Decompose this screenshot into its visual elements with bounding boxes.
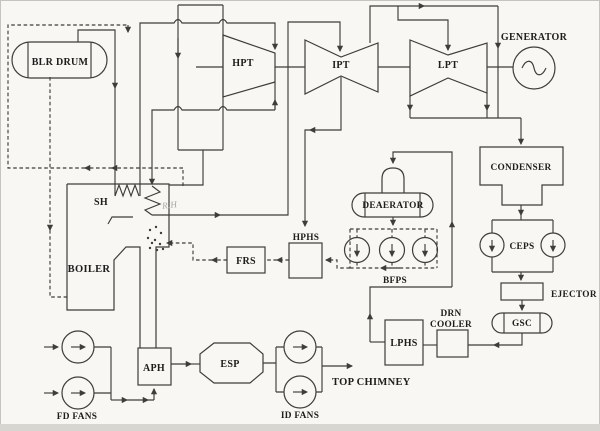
id-fans: ID FANS TOP CHIMNEY bbox=[263, 331, 411, 421]
esp: ESP bbox=[171, 343, 263, 383]
hpt-label: HPT bbox=[232, 58, 253, 69]
generator-label: GENERATOR bbox=[501, 32, 568, 43]
deaerator-label: DEAERATOR bbox=[362, 201, 423, 211]
ceps-pumps: CEPS bbox=[480, 205, 565, 280]
boiler-drum: BLR DRUM bbox=[12, 42, 107, 78]
scan-border bbox=[1, 1, 600, 431]
lphs-label: LPHS bbox=[390, 338, 417, 349]
lpt-label: LPT bbox=[438, 60, 458, 71]
hphs-label: HPHS bbox=[293, 233, 320, 243]
aph: APH bbox=[138, 348, 171, 385]
gsc-label: GSC bbox=[512, 319, 532, 329]
aph-label: APH bbox=[143, 363, 165, 374]
furnace-nose bbox=[108, 217, 133, 224]
hphs-box bbox=[289, 243, 322, 278]
blr-drum-label: BLR DRUM bbox=[32, 57, 89, 68]
reheater-coil bbox=[145, 186, 160, 215]
bfps-pumps: BFPS bbox=[326, 217, 438, 286]
feedwater-dashed-lines bbox=[167, 243, 289, 260]
diagram-canvas: BLR DRUM SH BOILER R.H bbox=[0, 0, 600, 431]
turbine-train: HPT IPT LPT GENERATOR bbox=[196, 32, 568, 97]
frs-label: FRS bbox=[236, 256, 256, 267]
boiler-label: BOILER bbox=[68, 264, 111, 275]
condenser-body bbox=[480, 147, 563, 205]
fd-fans-label: FD FANS bbox=[57, 412, 97, 422]
esp-label: ESP bbox=[220, 359, 239, 370]
power-plant-flow-diagram: BLR DRUM SH BOILER R.H bbox=[0, 0, 600, 431]
bottom-band bbox=[0, 424, 600, 431]
deaerator: DEAERATOR bbox=[352, 168, 433, 217]
drn-cooler-label-2: COOLER bbox=[430, 320, 472, 330]
sh-label: SH bbox=[94, 197, 108, 208]
downcomer-column bbox=[169, 5, 223, 185]
superheater-coil bbox=[115, 185, 139, 196]
condenser-label: CONDENSER bbox=[490, 163, 551, 173]
ejector-box bbox=[501, 283, 543, 300]
ceps-label: CEPS bbox=[510, 242, 535, 252]
cold-reheat-line bbox=[152, 107, 275, 185]
top-chimney-label: TOP CHIMNEY bbox=[332, 377, 411, 388]
rh-label: R.H bbox=[161, 199, 178, 211]
drn-cooler-label-1: DRN bbox=[440, 309, 461, 319]
drain-cooler: DRN COOLER bbox=[423, 309, 472, 357]
sine-wave-icon bbox=[522, 61, 546, 75]
deaerator-dome bbox=[382, 168, 404, 193]
ejector: EJECTOR bbox=[501, 283, 597, 310]
hphs: HPHS bbox=[289, 233, 322, 278]
extraction-to-hphs bbox=[310, 77, 341, 130]
crossover-line bbox=[370, 6, 424, 43]
bfps-label: BFPS bbox=[383, 276, 407, 286]
ejector-label: EJECTOR bbox=[551, 290, 597, 300]
ipt-label: IPT bbox=[332, 60, 350, 71]
condenser: CONDENSER bbox=[480, 147, 563, 205]
boiler: SH BOILER R.H bbox=[67, 184, 178, 348]
frs: FRS bbox=[227, 247, 265, 273]
steam-piping bbox=[78, 5, 521, 226]
id-fans-label: ID FANS bbox=[281, 411, 319, 421]
drn-cooler-box bbox=[437, 330, 468, 357]
gsc: GSC bbox=[468, 313, 552, 345]
